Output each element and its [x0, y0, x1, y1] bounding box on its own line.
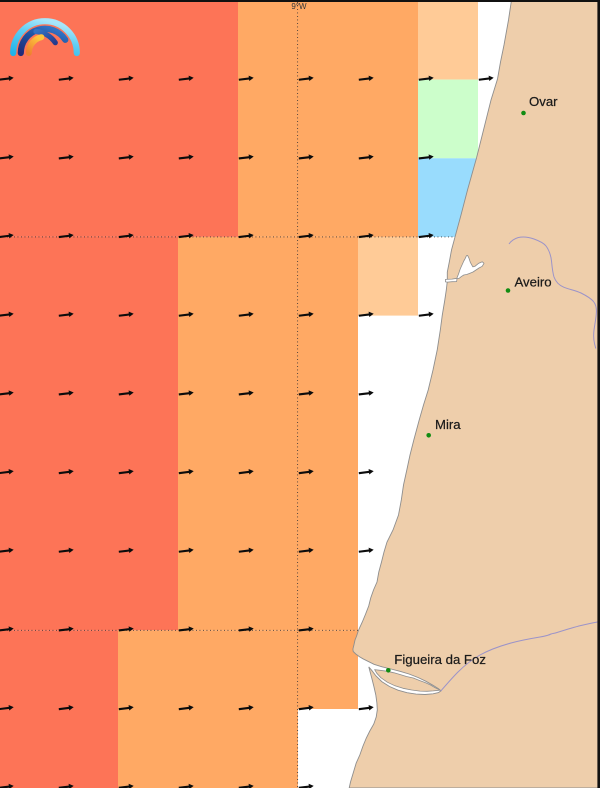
svg-text:9°W: 9°W — [291, 2, 307, 11]
svg-text:Aveiro: Aveiro — [515, 274, 552, 289]
svg-text:Ovar: Ovar — [529, 94, 558, 109]
svg-text:Figueira da Foz: Figueira da Foz — [394, 652, 486, 667]
svg-text:Mira: Mira — [435, 417, 461, 432]
